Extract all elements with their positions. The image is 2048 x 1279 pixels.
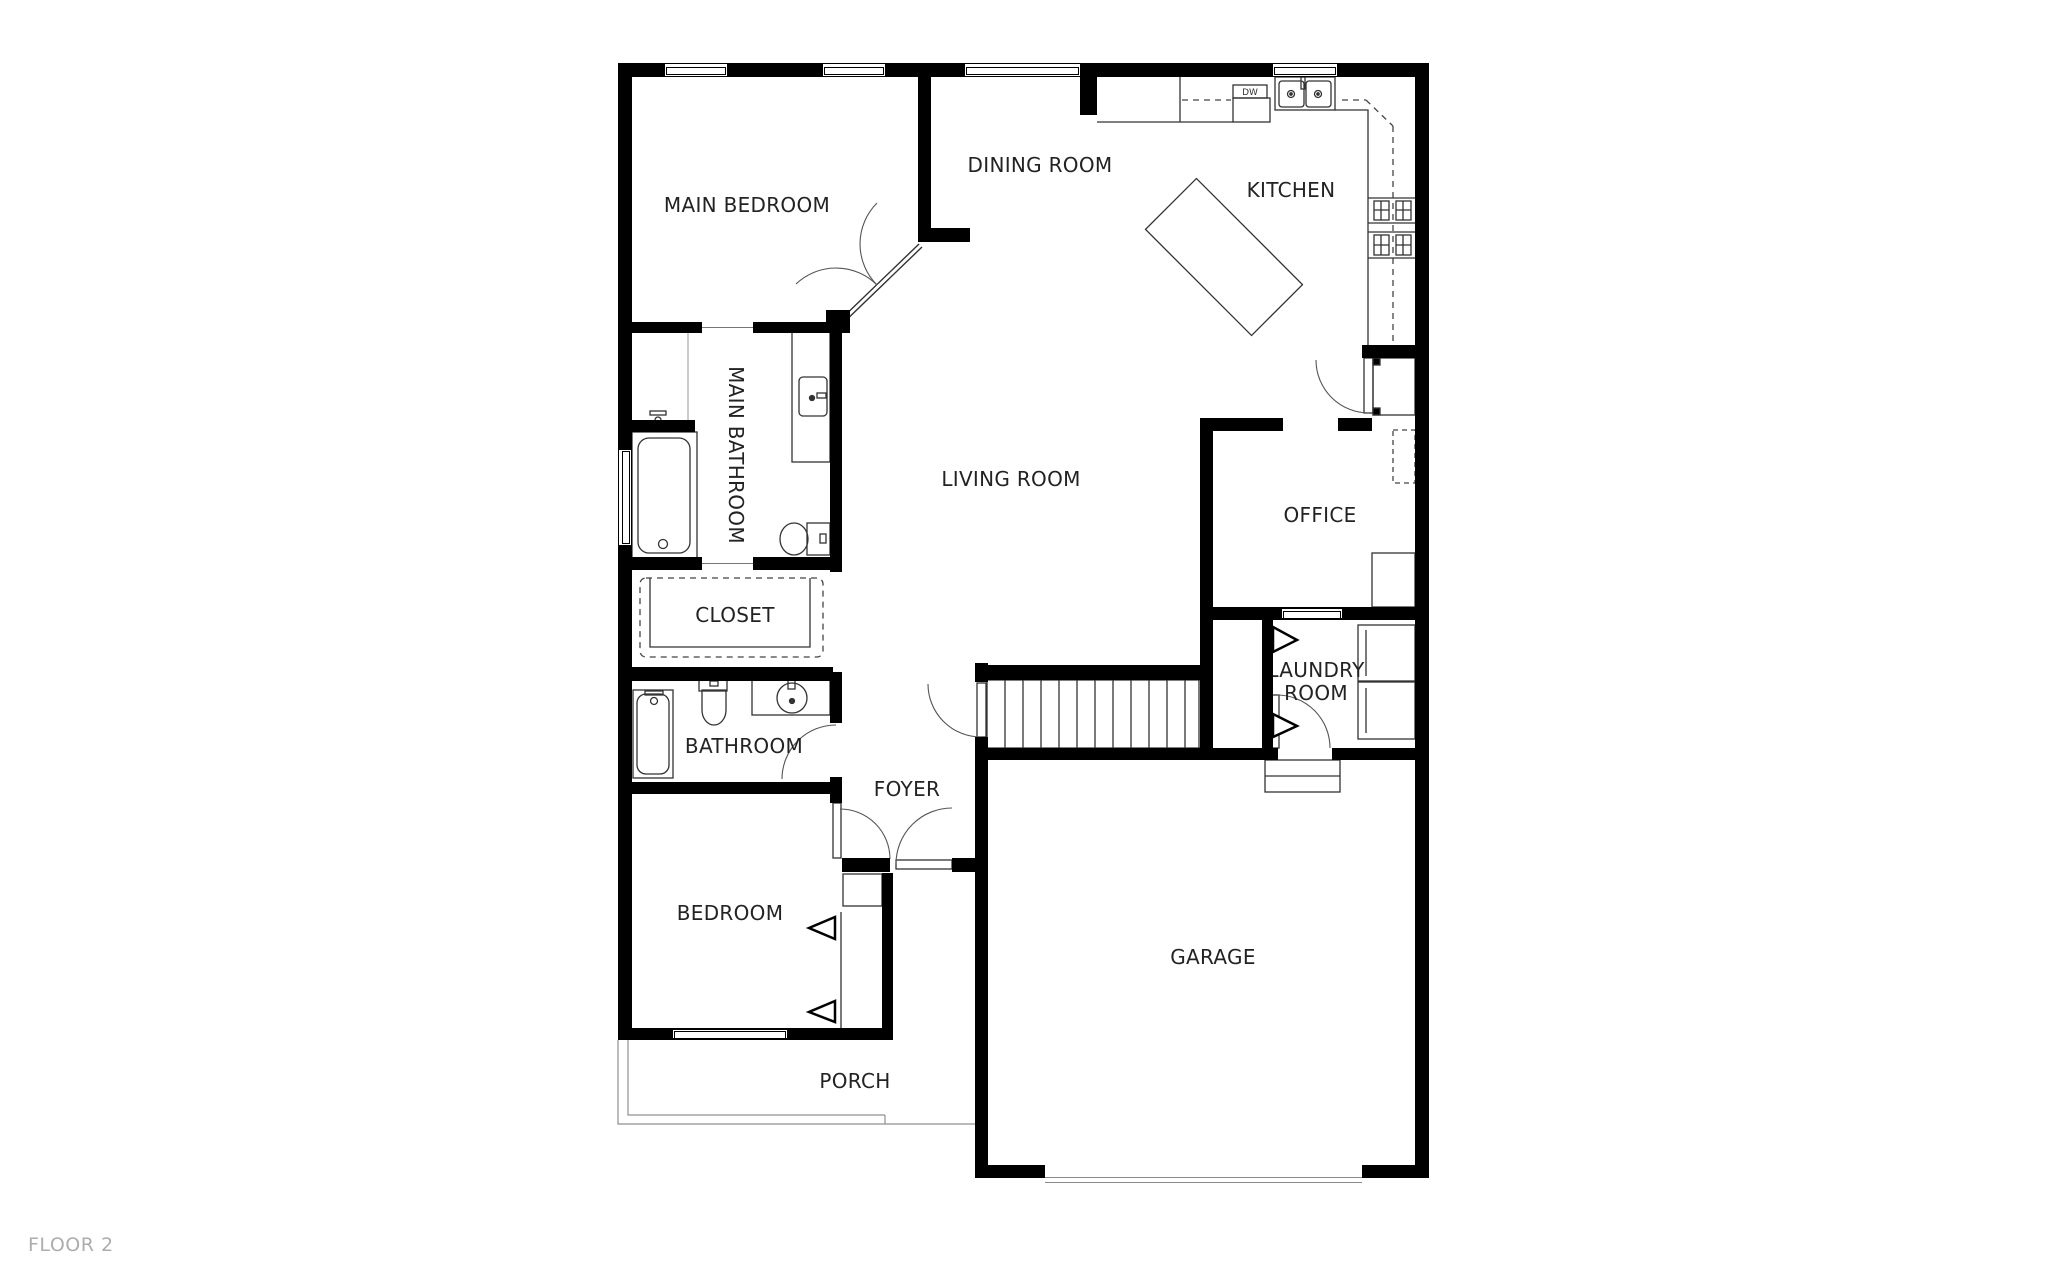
round-sink-icon [752, 678, 830, 715]
wall [988, 748, 1278, 760]
door-front-entry [896, 808, 952, 869]
garage-door-line [1045, 1177, 1362, 1178]
wall [627, 557, 702, 570]
room-label-bathroom: BATHROOM [685, 734, 803, 758]
wall [882, 873, 893, 1028]
wall [842, 858, 890, 872]
window [823, 63, 885, 77]
toilet-icon [780, 523, 830, 555]
wall [975, 1165, 1045, 1178]
room-label-living-room: LIVING ROOM [941, 467, 1080, 491]
wall [1362, 1165, 1429, 1178]
door-bedroom [833, 803, 890, 859]
kitchen-counter [1097, 77, 1415, 345]
room-label-bedroom: BEDROOM [677, 901, 784, 925]
window [673, 1029, 787, 1039]
door-kitchen-hall [1316, 358, 1373, 413]
stairs [987, 680, 1200, 748]
pantry-shelf [1373, 358, 1415, 415]
wall [627, 420, 695, 432]
wall [1362, 345, 1429, 358]
kitchen-sink-icon [1275, 77, 1335, 110]
room-label-main-bedroom: MAIN BEDROOM [664, 193, 830, 217]
floor-plan: DW [0, 0, 2048, 1279]
wall [1262, 620, 1273, 748]
wall [628, 667, 833, 681]
floor-label: FLOOR 2 [28, 1234, 114, 1256]
double-door [796, 203, 922, 327]
room-label-foyer: FOYER [874, 777, 940, 801]
wall [1200, 418, 1213, 760]
shower-icon [633, 690, 673, 778]
dishwasher-label: DW [1242, 88, 1258, 98]
wall-opening [702, 557, 753, 570]
room-label-laundry-room: LAUNDRY ROOM [1258, 659, 1374, 705]
plan-graphics: DW [0, 0, 2048, 1279]
room-label-dining-room: DINING ROOM [968, 153, 1113, 177]
garage-door-line [1045, 1182, 1362, 1183]
room-label-closet: CLOSET [695, 603, 775, 627]
toilet2-icon [699, 678, 727, 725]
wall [830, 672, 842, 723]
wall [830, 332, 842, 572]
wall [975, 737, 988, 1178]
wall [1338, 418, 1372, 431]
window [1273, 63, 1337, 77]
office-desk [1372, 553, 1415, 607]
wall [1080, 63, 1097, 115]
bedroom-closet-front [841, 874, 882, 1028]
room-label-garage: GARAGE [1170, 945, 1256, 969]
room-label-main-bathroom: MAIN BATHROOM [724, 366, 748, 544]
water-heater-platform [1265, 760, 1340, 792]
wall [618, 782, 840, 794]
room-label-kitchen: KITCHEN [1247, 178, 1336, 202]
porch-outline [618, 1040, 981, 1124]
vanity-sink-icon [792, 332, 830, 462]
window [618, 450, 632, 545]
window [965, 63, 1080, 77]
wall-opening [702, 322, 753, 333]
wall [952, 858, 988, 872]
wall [1332, 748, 1429, 760]
door-stairs [928, 683, 986, 737]
wall [1415, 63, 1429, 1178]
dishwasher-icon: DW [1233, 85, 1270, 122]
room-label-office: OFFICE [1283, 503, 1356, 527]
wall [753, 557, 833, 570]
room-label-porch: PORCH [819, 1069, 890, 1093]
window [665, 63, 727, 77]
wall [918, 228, 970, 242]
wall [618, 63, 632, 1040]
wall [1213, 418, 1283, 431]
wall [978, 665, 1213, 680]
window [1282, 608, 1342, 619]
wall [918, 63, 931, 242]
office-cabinet-dashed [1393, 430, 1415, 483]
bathtub-icon [632, 411, 697, 560]
kitchen-island [1146, 179, 1303, 336]
